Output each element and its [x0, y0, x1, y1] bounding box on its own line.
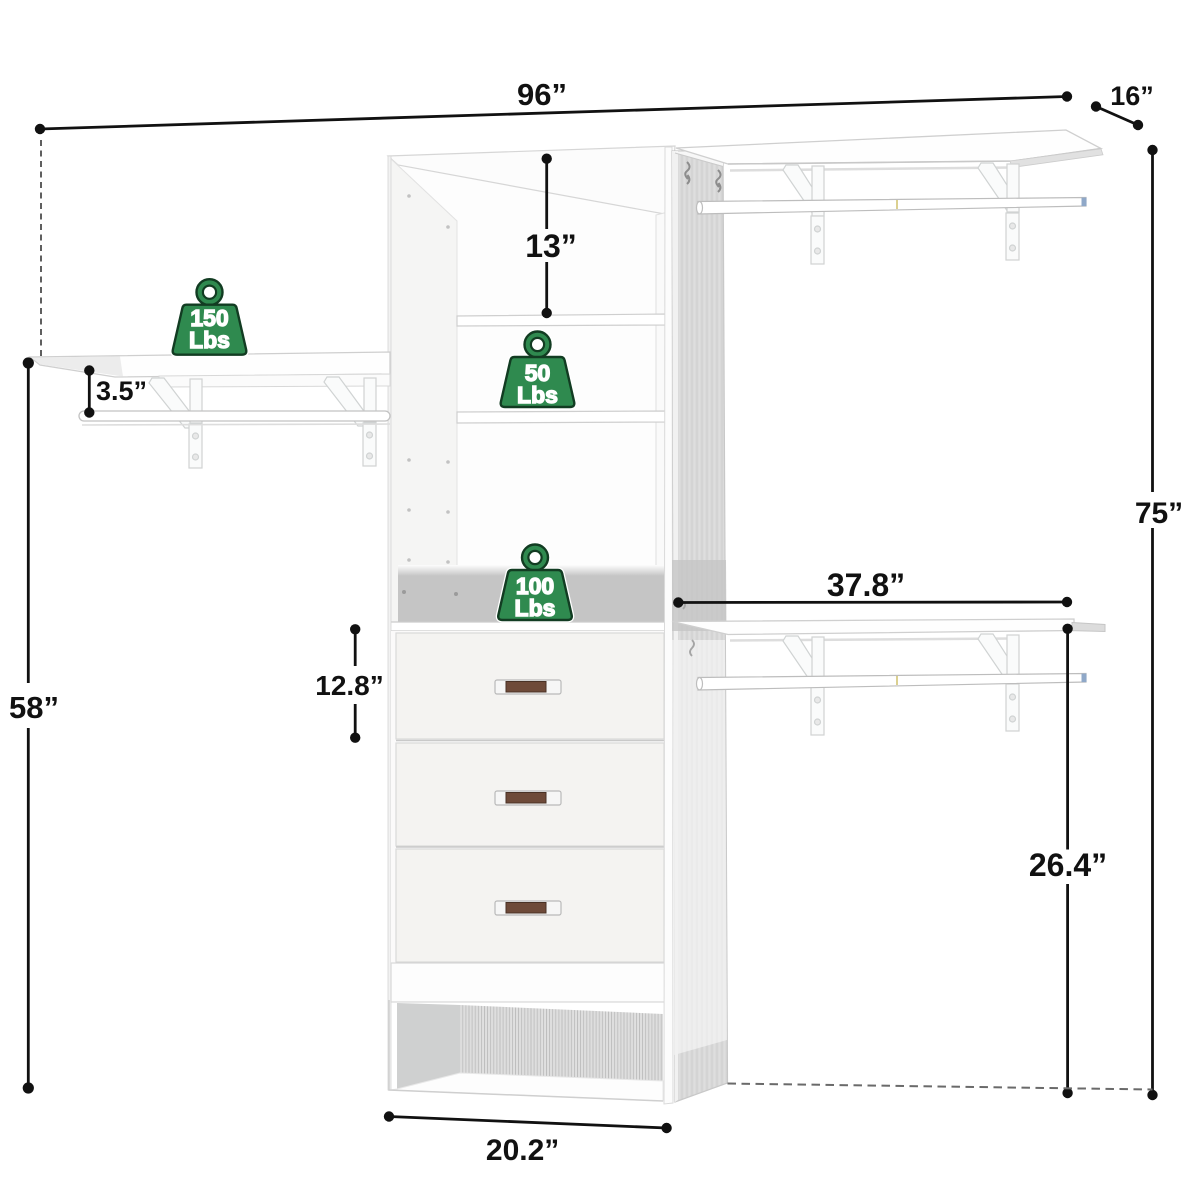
svg-text:Lbs: Lbs — [189, 327, 230, 353]
svg-text:13”: 13” — [525, 228, 577, 264]
svg-text:96”: 96” — [517, 77, 567, 112]
svg-text:58”: 58” — [9, 690, 59, 725]
svg-text:3.5”: 3.5” — [96, 376, 147, 406]
svg-text:16”: 16” — [1110, 81, 1154, 111]
svg-text:12.8”: 12.8” — [315, 670, 384, 701]
svg-text:26.4”: 26.4” — [1029, 847, 1107, 883]
svg-text:75”: 75” — [1135, 497, 1183, 530]
svg-text:20.2”: 20.2” — [486, 1134, 559, 1167]
svg-text:37.8”: 37.8” — [827, 567, 905, 603]
svg-text:Lbs: Lbs — [515, 595, 556, 621]
svg-text:Lbs: Lbs — [517, 382, 558, 408]
